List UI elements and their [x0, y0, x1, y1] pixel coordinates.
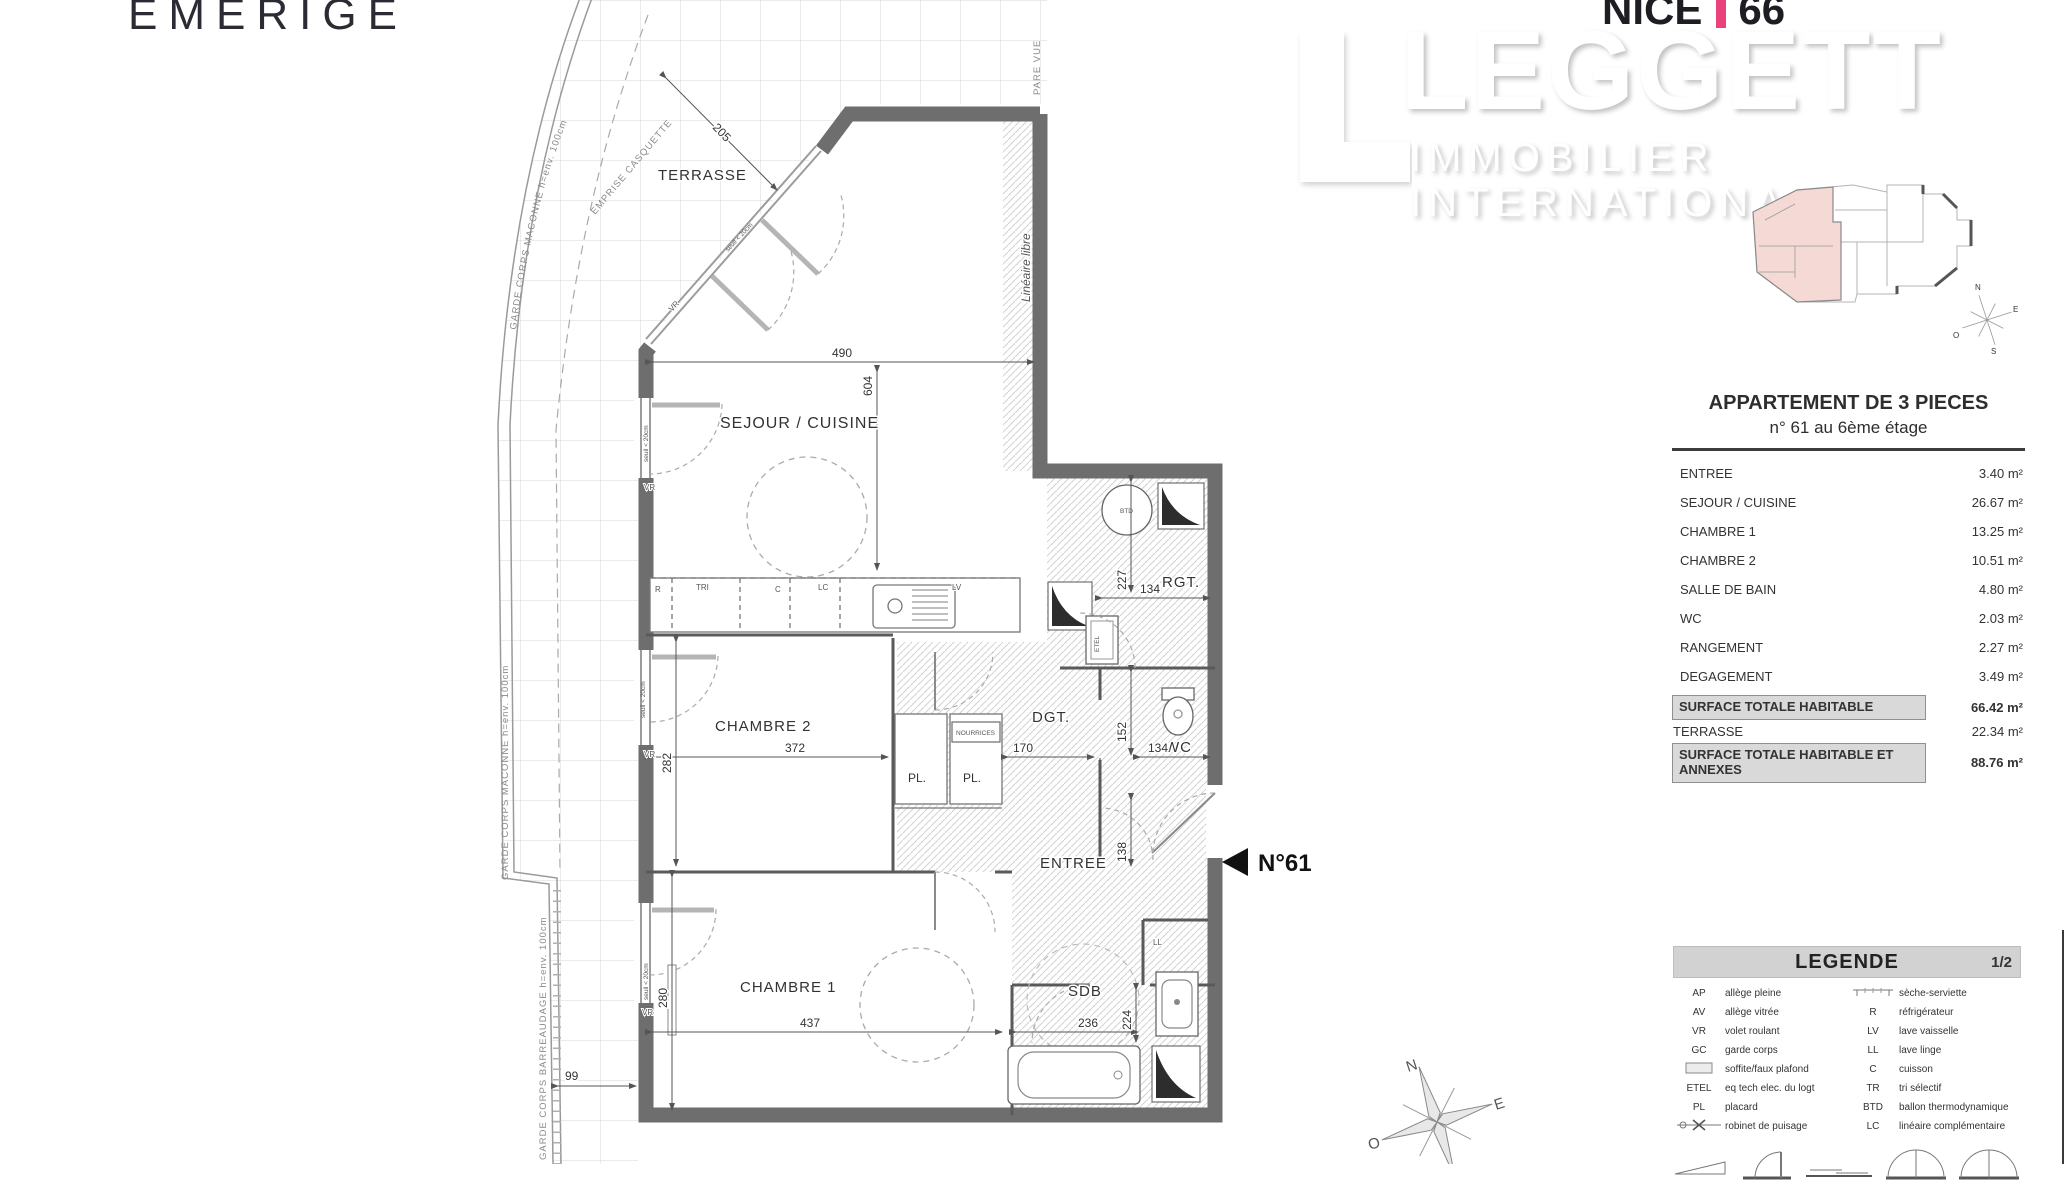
- legend-right-column: sèche-serviette Rréfrigérateur LVlave va…: [1847, 984, 2021, 1136]
- area-row: SEJOUR / CUISINE26.67 m²: [1672, 488, 2025, 517]
- dim-236: 236: [1078, 1016, 1098, 1030]
- legend-label: réfrigérateur: [1899, 1007, 2021, 1018]
- legend-abbr: VR: [1673, 1026, 1725, 1037]
- unit-marker-label: N°61: [1258, 850, 1312, 877]
- legend-label: lave vaisselle: [1899, 1026, 2021, 1037]
- area-label: CHAMBRE 2: [1672, 553, 1756, 568]
- total-label: SURFACE TOTALE HABITABLE ET ANNEXES: [1672, 743, 1926, 783]
- kitchen-c: C: [775, 585, 781, 594]
- area-row: WC2.03 m²: [1672, 604, 2025, 633]
- dim-372: 372: [785, 741, 805, 755]
- leggett-wordmark: LEGGETT: [1400, 6, 1943, 135]
- closet-label-pl2: PL.: [963, 771, 981, 785]
- apartment-title: APPARTEMENT DE 3 PIECES: [1672, 392, 2025, 415]
- annot-lineaire-libre: Linéaire libre: [1019, 233, 1033, 302]
- legend-label: tri sélectif: [1899, 1083, 2021, 1094]
- area-label: SEJOUR / CUISINE: [1672, 495, 1796, 510]
- legend-abbr: PL: [1673, 1102, 1725, 1113]
- legend-label: eq tech elec. du logt: [1725, 1083, 1847, 1094]
- area-value: 2.03 m²: [1979, 611, 2025, 626]
- area-value: 4.80 m²: [1979, 582, 2025, 597]
- leggett-logo: LEGGETT IMMOBILIER INTERNATIONAL: [1292, 24, 2069, 194]
- seuil-chambre1: seuil < 20cm: [643, 963, 650, 1000]
- dim-490: 490: [832, 346, 852, 360]
- area-label: CHAMBRE 1: [1672, 524, 1756, 539]
- ll-label: LL: [1153, 938, 1162, 947]
- legend-door-symbols: [1673, 1136, 2021, 1182]
- room-label-sejour: SEJOUR / CUISINE: [720, 415, 879, 432]
- legend-abbr: LV: [1847, 1026, 1899, 1037]
- legend-label: allège pleine: [1725, 988, 1847, 999]
- vr-chambre2: VR: [644, 750, 655, 759]
- legend-label: ballon thermodynamique: [1899, 1102, 2021, 1113]
- unit-marker: N°61: [1222, 848, 1312, 877]
- total-label: SURFACE TOTALE HABITABLE: [1672, 695, 1926, 720]
- dim-282: 282: [660, 753, 674, 773]
- legend-label: volet roulant: [1725, 1026, 1847, 1037]
- legend-label: garde corps: [1725, 1045, 1847, 1056]
- title-divider: [1672, 448, 2025, 451]
- dim-170: 170: [1013, 741, 1033, 755]
- legend-abbr: TR: [1847, 1083, 1899, 1094]
- legend-label: placard: [1725, 1102, 1847, 1113]
- compass-rose: N E O S: [1364, 1049, 1510, 1164]
- kitchen-r: R: [655, 585, 661, 594]
- dim-134-rgt: 134: [1140, 582, 1160, 596]
- emerige-logo: EMERIGE: [128, 0, 408, 40]
- dim-99: 99: [565, 1069, 579, 1083]
- total-value: 66.42 m²: [1971, 700, 2025, 715]
- room-label-chambre1: CHAMBRE 1: [740, 979, 837, 996]
- area-label: DEGAGEMENT: [1672, 669, 1772, 684]
- key-plan: N E O S: [1735, 180, 2055, 360]
- legend-label: allège vitrée: [1725, 1007, 1847, 1018]
- soffit-icon: [1673, 1062, 1725, 1077]
- etel-label: ETEL: [1094, 635, 1101, 652]
- dim-138: 138: [1115, 842, 1129, 862]
- key-compass-o: O: [1953, 331, 1959, 340]
- legend-abbr: C: [1847, 1064, 1899, 1075]
- legend-label: robinet de puisage: [1725, 1121, 1847, 1132]
- towel-rail-icon: [1847, 986, 1899, 1001]
- single-door-icon: [1739, 1136, 1795, 1182]
- total-row-terrasse: TERRASSE 22.34 m²: [1672, 724, 2025, 739]
- total-label: TERRASSE: [1672, 724, 1743, 739]
- leggett-l-icon: [1292, 32, 1412, 202]
- area-row: ENTREE3.40 m²: [1672, 459, 2025, 488]
- compass-o: O: [1366, 1134, 1382, 1154]
- legend-header: LEGENDE 1/2: [1673, 946, 2021, 978]
- annot-garde-corps-bottom: GARDE CORPS BARREAUDAGE h=env. 100cm: [538, 916, 549, 1160]
- area-value: 3.49 m²: [1979, 669, 2025, 684]
- key-plan-unit-highlight: [1753, 187, 1841, 302]
- legend-abbr: LL: [1847, 1045, 1899, 1056]
- annot-pare-vue: PARE VUE: [1032, 40, 1043, 95]
- total-value: 22.34 m²: [1972, 724, 2025, 739]
- legend-label: lave linge: [1899, 1045, 2021, 1056]
- dim-604: 604: [861, 376, 875, 396]
- room-label-sdb: SDB: [1068, 983, 1102, 1000]
- legend-abbr: R: [1847, 1007, 1899, 1018]
- key-plan-compass: N E O S: [1953, 283, 2020, 356]
- room-label-dgt: DGT.: [1032, 709, 1070, 726]
- valve-icon: [1673, 1118, 1725, 1135]
- legend-page-number: 1/2: [1991, 954, 2012, 971]
- room-label-rgt: RGT.: [1162, 574, 1200, 591]
- legend-abbr: BTD: [1847, 1102, 1899, 1113]
- apartment-subtitle: n° 61 au 6ème étage: [1672, 418, 2025, 438]
- dim-134-wc: 134: [1148, 741, 1168, 755]
- area-label: WC: [1672, 611, 1702, 626]
- seuil-sejour: seuil < 20cm: [643, 425, 650, 462]
- kitchen-lc: LC: [818, 583, 828, 592]
- compass-n: N: [1404, 1056, 1420, 1076]
- legend-abbr: AV: [1673, 1007, 1725, 1018]
- ramp-symbol-icon: [1673, 1136, 1729, 1182]
- area-row: SALLE DE BAIN4.80 m²: [1672, 575, 2025, 604]
- legend-abbr: AP: [1673, 988, 1725, 999]
- annot-garde-corps-left: GARDE CORPS MACONNE h=env. 100cm: [500, 665, 511, 880]
- legend-abbr: LC: [1847, 1121, 1899, 1132]
- legend-title: LEGENDE: [1674, 951, 2020, 974]
- vr-chambre1: VR: [642, 1008, 653, 1017]
- area-value: 10.51 m²: [1972, 553, 2025, 568]
- closet-label-pl1: PL.: [908, 771, 926, 785]
- total-row-annexes: SURFACE TOTALE HABITABLE ET ANNEXES 88.7…: [1672, 743, 2025, 783]
- legend-label: soffite/faux plafond: [1725, 1064, 1847, 1075]
- area-value: 2.27 m²: [1979, 640, 2025, 655]
- legend-panel: LEGENDE 1/2 APallège pleine AVallège vit…: [1673, 946, 2021, 1136]
- dim-152: 152: [1115, 722, 1129, 742]
- floorplan-page: { "branding": { "developer_logo": "EMERI…: [0, 0, 2069, 1164]
- room-label-wc: WC: [1165, 739, 1192, 756]
- area-value: 26.67 m²: [1972, 495, 2025, 510]
- area-label: RANGEMENT: [1672, 640, 1763, 655]
- area-row: CHAMBRE 113.25 m²: [1672, 517, 2025, 546]
- legend-left-column: APallège pleine AVallège vitrée VRvolet …: [1673, 984, 1847, 1136]
- legend-label: cuisson: [1899, 1064, 2021, 1075]
- legend-abbr: ETEL: [1673, 1083, 1725, 1094]
- key-compass-s: S: [1991, 347, 1996, 356]
- dim-224: 224: [1120, 1010, 1134, 1030]
- area-row: DEGAGEMENT3.49 m²: [1672, 662, 2025, 691]
- room-label-terrasse: TERRASSE: [658, 167, 747, 184]
- sheet-border-line: [2062, 930, 2064, 1164]
- legend-label: sèche-serviette: [1899, 988, 2021, 999]
- kitchen-tri: TRI: [696, 583, 709, 592]
- key-compass-n: N: [1975, 283, 1981, 292]
- dim-437: 437: [800, 1016, 820, 1030]
- room-label-chambre2: CHAMBRE 2: [715, 718, 812, 735]
- double-door-icon: [1957, 1136, 2021, 1182]
- area-value: 3.40 m²: [1979, 466, 2025, 481]
- compass-e: E: [1492, 1095, 1507, 1114]
- sliding-window-icon: [1804, 1136, 1874, 1182]
- area-label: ENTREE: [1672, 466, 1733, 481]
- double-door-icon: [1884, 1136, 1948, 1182]
- total-row-habitable: SURFACE TOTALE HABITABLE 66.42 m²: [1672, 695, 2025, 720]
- area-row: CHAMBRE 210.51 m²: [1672, 546, 2025, 575]
- room-label-entree: ENTREE: [1040, 855, 1107, 872]
- seuil-chambre2: seuil < 20cm: [640, 681, 647, 718]
- kitchen-lv: LV: [952, 583, 962, 592]
- total-value: 88.76 m²: [1971, 755, 2025, 770]
- nourrices-label: NOURRICES: [956, 730, 996, 737]
- dim-227: 227: [1115, 570, 1129, 590]
- title-block: APPARTEMENT DE 3 PIECES n° 61 au 6ème ét…: [1672, 392, 2025, 783]
- legend-abbr: GC: [1673, 1045, 1725, 1056]
- legend-label: linéaire complémentaire: [1899, 1121, 2021, 1132]
- btd-label: BTD: [1120, 508, 1133, 515]
- dim-280: 280: [656, 988, 670, 1008]
- key-compass-e: E: [2013, 305, 2018, 314]
- area-value: 13.25 m²: [1972, 524, 2025, 539]
- area-row: RANGEMENT2.27 m²: [1672, 633, 2025, 662]
- vr-sejour: VR: [644, 483, 655, 492]
- area-label: SALLE DE BAIN: [1672, 582, 1776, 597]
